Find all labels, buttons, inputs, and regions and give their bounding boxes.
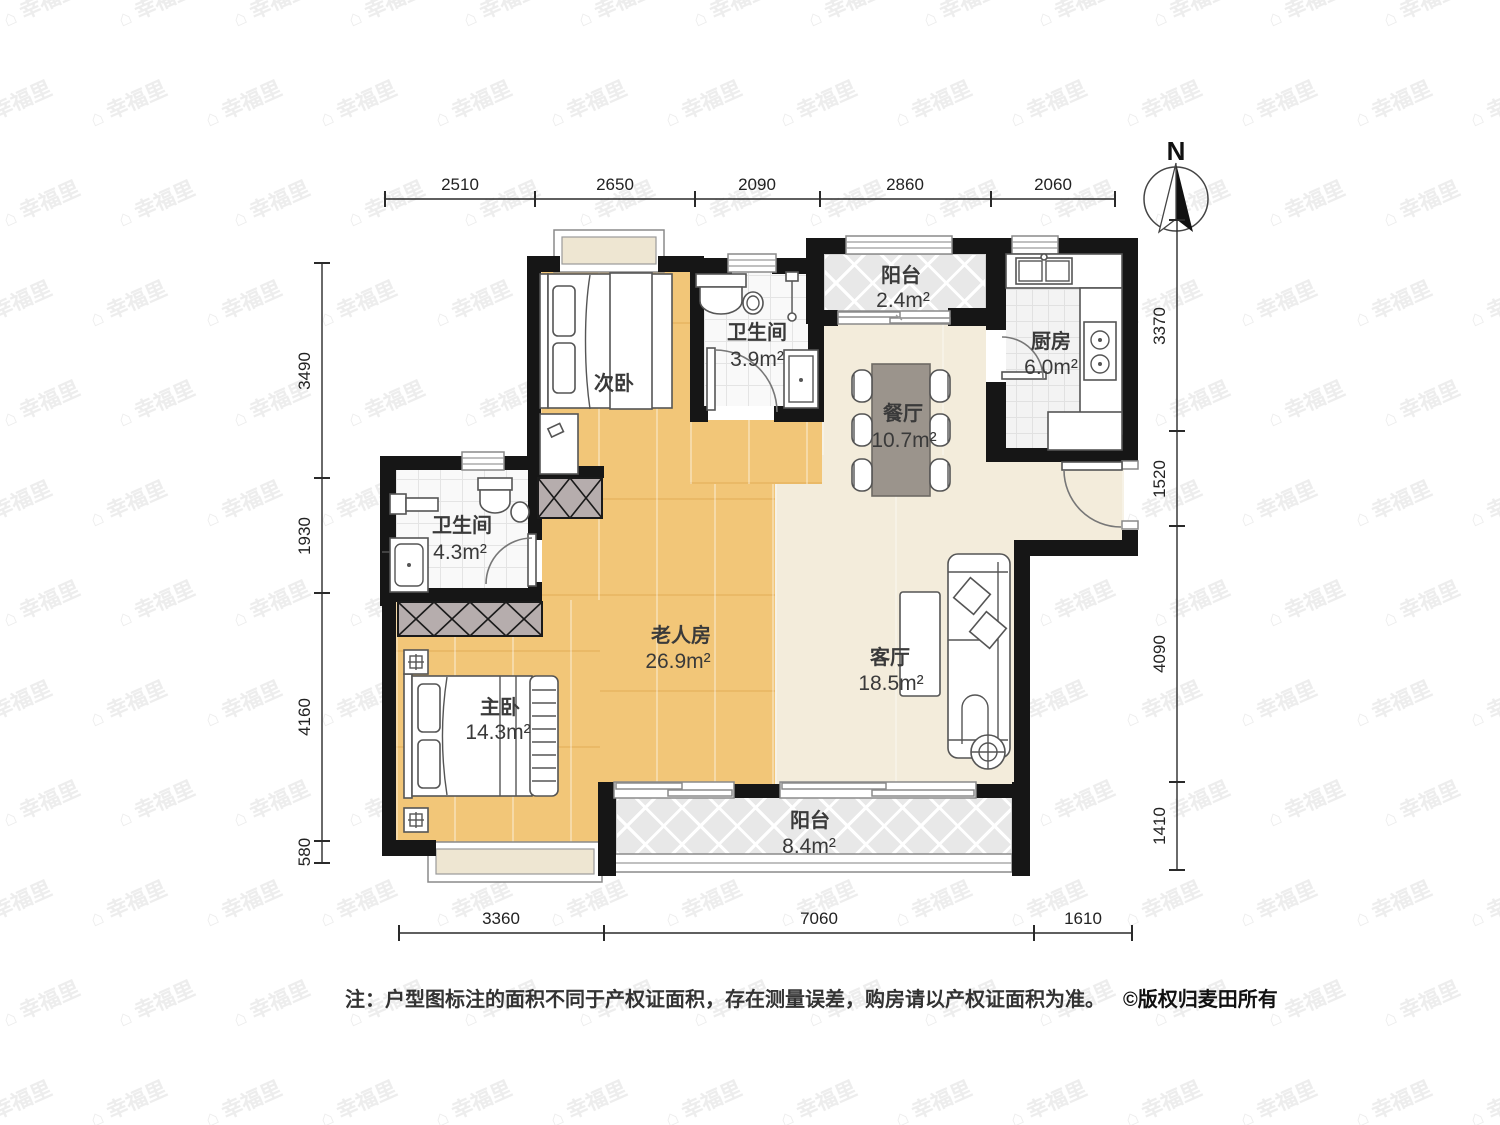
svg-text:4090: 4090 — [1150, 635, 1169, 673]
label-dining: 餐厅 — [883, 401, 923, 425]
wardrobe-master — [398, 602, 542, 636]
door-bath-left — [486, 534, 542, 586]
label-elder-room: 老人房 — [651, 623, 711, 647]
north-label: N — [1167, 136, 1186, 166]
copyright-text: ©版权归麦田所有 — [1123, 989, 1278, 1011]
note-text: 注：户型图标注的面积不同于产权证面积，存在测量误差，购房请以产权证面积为准。 — [345, 989, 1105, 1011]
sliding-window-living-right — [780, 782, 976, 798]
wardrobe-hall — [538, 478, 602, 518]
svg-text:2060: 2060 — [1034, 175, 1072, 194]
side-table — [971, 735, 1005, 769]
sink-bath-left — [390, 494, 438, 514]
area-kitchen: 6.0m² — [1024, 356, 1078, 379]
dimension-right: 3370 1520 4090 1410 — [1150, 220, 1185, 870]
label-master-bedroom: 主卧 — [480, 695, 520, 719]
svg-text:2650: 2650 — [596, 175, 634, 194]
nightstand-bottom — [404, 808, 428, 832]
bay-window-master-bedroom — [428, 842, 602, 882]
dimension-top: 2510 2650 2090 2860 2060 — [385, 175, 1115, 207]
area-master-bedroom: 14.3m² — [465, 721, 530, 744]
dimension-bottom: 3360 7060 1610 — [399, 909, 1132, 941]
toilet-bath-left — [478, 478, 512, 513]
shower-bath-top — [786, 272, 798, 321]
label-second-bedroom: 次卧 — [594, 371, 634, 395]
area-balcony-top: 2.4m² — [876, 289, 930, 312]
window-kitchen — [1012, 236, 1058, 254]
area-elder-room: 26.9m² — [645, 650, 710, 673]
svg-text:3490: 3490 — [295, 352, 314, 390]
window-bath-top — [728, 254, 776, 272]
toilet-bath-top — [696, 274, 746, 314]
nightstand-top — [404, 650, 428, 674]
svg-text:7060: 7060 — [800, 909, 838, 928]
svg-text:1610: 1610 — [1064, 909, 1102, 928]
svg-text:1410: 1410 — [1150, 807, 1169, 845]
label-balcony-top: 阳台 — [881, 263, 921, 287]
basin-bath-top — [743, 292, 763, 314]
kitchen-stove — [1084, 322, 1116, 380]
label-bath-left: 卫生间 — [432, 514, 492, 537]
label-kitchen: 厨房 — [1031, 329, 1071, 353]
disclaimer-note: 注：户型图标注的面积不同于产权证面积，存在测量误差，购房请以产权证面积为准。©版… — [345, 983, 1278, 1012]
svg-text:3370: 3370 — [1150, 307, 1169, 345]
label-bath-top: 卫生间 — [727, 321, 787, 344]
floorplan-page: ⌂ 幸福里⌂ 幸福里⌂ 幸福里⌂ 幸福里⌂ 幸福里⌂ 幸福里⌂ 幸福里⌂ 幸福里… — [0, 0, 1500, 1125]
svg-text:1930: 1930 — [295, 517, 314, 555]
svg-text:2860: 2860 — [886, 175, 924, 194]
basin-bath-left — [511, 502, 529, 522]
svg-text:1520: 1520 — [1150, 460, 1169, 498]
dimension-left: 3490 1930 4160 580 — [295, 263, 330, 866]
area-dining: 10.7m² — [871, 429, 936, 452]
north-arrow: N — [1144, 136, 1208, 232]
vanity-bath-top — [784, 350, 818, 408]
label-balcony-bottom: 阳台 — [790, 808, 830, 832]
kitchen-sink — [1016, 254, 1072, 284]
svg-text:580: 580 — [295, 838, 314, 866]
sliding-door-balcony-top — [838, 311, 950, 324]
area-bath-left: 4.3m² — [433, 541, 487, 564]
svg-text:2510: 2510 — [441, 175, 479, 194]
svg-text:2090: 2090 — [738, 175, 776, 194]
window-bath-left — [462, 452, 504, 470]
area-balcony-bottom: 8.4m² — [782, 835, 836, 858]
desk-second-bedroom — [540, 414, 578, 474]
label-living: 客厅 — [869, 645, 910, 669]
sofa — [948, 554, 1010, 758]
door-entry — [1062, 461, 1138, 529]
area-living: 18.5m² — [858, 672, 923, 695]
sliding-window-living-left — [614, 782, 734, 798]
area-bath-top: 3.9m² — [730, 348, 784, 371]
bay-window-second-bedroom — [554, 230, 664, 272]
svg-text:4160: 4160 — [295, 698, 314, 736]
floorplan-svg: 阳台 2.4m² 厨房 6.0m² 卫生间 3.9m² 次卧 餐厅 10.7m²… — [0, 0, 1500, 1125]
svg-text:3360: 3360 — [482, 909, 520, 928]
window-balcony-top — [846, 236, 952, 254]
